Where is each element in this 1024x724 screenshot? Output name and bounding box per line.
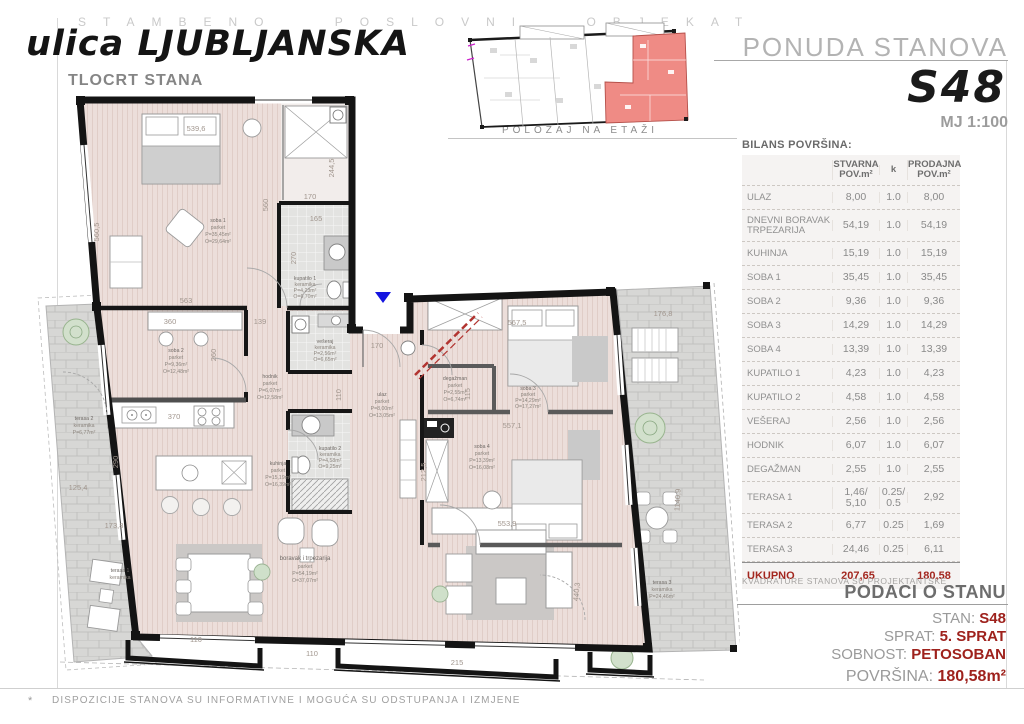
offer-title: PONUDA STANOVA [743, 32, 1008, 63]
hall-closet [400, 420, 416, 498]
svg-text:125,4: 125,4 [69, 483, 88, 492]
stool [162, 497, 179, 514]
svg-text:kuhinja: kuhinja [270, 461, 287, 467]
room-label-veseraj: vešeraj keramika P=2,56m² O=6,65m² [313, 339, 336, 363]
table-row: SOBA 3 14,29 1.0 14,29 [742, 314, 960, 338]
svg-text:539,6: 539,6 [187, 124, 206, 133]
svg-text:parket: parket [211, 225, 226, 231]
table-row: TERASA 3 24,46 0.25 6,11 [742, 538, 960, 562]
svg-text:P=54,19m²: P=54,19m² [292, 571, 318, 577]
svg-text:O=17,27m²: O=17,27m² [515, 404, 541, 410]
svg-text:P=13,39m²: P=13,39m² [469, 458, 495, 464]
room-label-kupatilo2: kupatilo 2 keramika P=4,58m² O=9,25m² [318, 446, 341, 470]
chair [636, 492, 650, 505]
toilet-icon [327, 281, 341, 299]
stool [193, 499, 210, 516]
svg-text:terasa 2: terasa 2 [75, 416, 94, 422]
svg-text:parket: parket [448, 383, 463, 389]
svg-text:terasa 3: terasa 3 [653, 580, 672, 586]
pillow [146, 117, 178, 135]
svg-text:P=8,00m²: P=8,00m² [371, 406, 394, 412]
chair [248, 602, 263, 615]
round-table [646, 507, 668, 529]
table-row: TERASA 2 6,77 0.25 1,69 [742, 514, 960, 538]
armchair [446, 586, 472, 614]
svg-text:parket: parket [298, 564, 313, 570]
svg-text:terasa 1: terasa 1 [111, 568, 130, 574]
chair [194, 332, 208, 346]
svg-text:110: 110 [334, 389, 343, 401]
svg-text:boravak i trpezarija: boravak i trpezarija [280, 556, 331, 562]
table-row: HODNIK 6,07 1.0 6,07 [742, 434, 960, 458]
stool [224, 499, 241, 516]
table-row: KUPATILO 1 4,23 1.0 4,23 [742, 362, 960, 386]
svg-text:212,5: 212,5 [419, 463, 428, 482]
room-label-terasa3: terasa 3 keramika P=24,46m² [649, 580, 675, 600]
chair [663, 530, 677, 543]
svg-text:soba 4: soba 4 [474, 444, 490, 450]
table-header-row: STVARNA POV.m² k PRODAJNA POV.m² [742, 155, 960, 186]
unit-info-title: PODACI O STANU [844, 582, 1006, 603]
pillow [546, 310, 574, 326]
svg-text:keramika: keramika [109, 575, 130, 581]
table-row: SOBA 2 9,36 1.0 9,36 [742, 290, 960, 314]
tree-icon [635, 413, 665, 443]
col-stvarna: STVARNA POV.m² [832, 160, 879, 180]
table-row: DNEVNI BORAVAK TRPEZARIJA 54,19 1.0 54,1… [742, 210, 960, 242]
side-table [99, 589, 114, 604]
table-row: SOBA 4 13,39 1.0 13,39 [742, 338, 960, 362]
footnote-mark: * [28, 695, 32, 707]
svg-text:O=29,64m²: O=29,64m² [205, 239, 231, 245]
unit-field-povrsina: POVRŠINA: 180,58m² [846, 668, 1006, 686]
svg-text:260: 260 [209, 349, 218, 362]
svg-text:360: 360 [164, 317, 177, 326]
svg-text:keramika: keramika [651, 587, 672, 593]
svg-text:557,1: 557,1 [503, 421, 522, 430]
chair [483, 491, 501, 509]
lounge-chair [312, 520, 338, 546]
chair [176, 558, 191, 571]
svg-text:139: 139 [254, 317, 267, 326]
svg-text:165: 165 [310, 214, 323, 223]
svg-text:soba 2: soba 2 [168, 348, 184, 354]
table-row: KUHINJA 15,19 1.0 15,19 [742, 242, 960, 266]
table-row: DEGAŽMAN 2,55 1.0 2,55 [742, 458, 960, 482]
lounge-chair [87, 605, 120, 631]
table-row: KUPATILO 2 4,58 1.0 4,58 [742, 386, 960, 410]
washer-icon [292, 316, 309, 333]
floor-plan: soba 1 parket P=35,45m² O=29,64m² kupati… [0, 0, 740, 724]
ottoman [496, 578, 526, 604]
svg-text:soba 1: soba 1 [210, 218, 226, 224]
svg-text:parket: parket [375, 399, 390, 405]
svg-text:1140,9: 1140,9 [672, 488, 682, 511]
svg-text:567,5: 567,5 [508, 318, 527, 327]
svg-text:215: 215 [451, 658, 464, 667]
unit-info-rule [737, 604, 1008, 605]
svg-text:115: 115 [463, 388, 472, 400]
room-label-terasa2: terasa 2 keramika P=6,77m² [73, 416, 96, 436]
svg-text:110: 110 [190, 635, 202, 644]
svg-text:560,5: 560,5 [92, 223, 101, 242]
desk [148, 312, 242, 330]
col-prodajna: PRODAJNA POV.m² [907, 160, 960, 180]
svg-text:parket: parket [475, 451, 490, 457]
svg-text:O=13,05m²: O=13,05m² [369, 413, 395, 419]
svg-text:degažman: degažman [443, 376, 467, 382]
shower [292, 479, 348, 510]
svg-text:176,8: 176,8 [654, 309, 673, 318]
svg-text:110: 110 [306, 649, 318, 658]
svg-text:P=6,07m²: P=6,07m² [259, 388, 282, 394]
svg-text:parket: parket [263, 381, 278, 387]
svg-text:O=16,39m²: O=16,39m² [265, 482, 291, 488]
washer-icon [330, 107, 346, 123]
room-label-kupatilo1: kupatilo 1 keramika P=4,23m² O=6,70m² [293, 276, 316, 300]
room-label-terasa1: terasa 1 keramika [109, 568, 130, 581]
chair [159, 332, 173, 346]
table-row: ULAZ 8,00 1.0 8,00 [742, 186, 960, 210]
rug [572, 336, 608, 382]
scale-label: MJ 1:100 [940, 114, 1008, 132]
plant-icon [432, 586, 448, 602]
area-table-title: BILANS POVRŠINA: [742, 139, 852, 151]
offer-sheet: STAMBENO POSLOVNI OBJEKAT ulica LJUBLJAN… [0, 0, 1024, 724]
chair [176, 580, 191, 593]
sofa [546, 552, 572, 608]
table-row: TERASA 1 1,46/ 5,10 0.25/ 0.5 2,92 [742, 482, 960, 514]
svg-text:370: 370 [168, 412, 181, 421]
position-diagram [467, 23, 688, 129]
svg-text:O=6,65m²: O=6,65m² [313, 357, 336, 363]
svg-text:270: 270 [289, 252, 298, 265]
svg-text:P=35,45m²: P=35,45m² [205, 232, 231, 238]
svg-text:170: 170 [371, 341, 384, 350]
unit-field-stan: STAN: S48 [932, 610, 1006, 627]
svg-text:parket: parket [169, 355, 184, 361]
chair [248, 580, 263, 593]
footnote: DISPOZICIJE STANOVA SU INFORMATIVNE I MO… [52, 695, 521, 706]
svg-text:553,9: 553,9 [498, 519, 517, 528]
armchair [446, 554, 472, 582]
svg-text:440,3: 440,3 [571, 582, 582, 601]
svg-text:563: 563 [180, 296, 193, 305]
sofa [476, 530, 546, 554]
svg-text:O=9,25m²: O=9,25m² [318, 464, 341, 470]
sun-lounger [632, 328, 678, 352]
sink-icon [332, 316, 341, 325]
table-row: VEŠERAJ 2,56 1.0 2,56 [742, 410, 960, 434]
unit-field-sprat: SPRAT: 5. SPRAT [884, 628, 1006, 645]
dining-table [188, 554, 250, 612]
offer-rule [714, 60, 1008, 61]
svg-text:244,5: 244,5 [327, 159, 336, 178]
svg-text:290: 290 [111, 456, 120, 469]
sink-icon [302, 416, 320, 434]
chair [176, 602, 191, 615]
svg-text:O=16,08m²: O=16,08m² [469, 465, 495, 471]
svg-text:ulaz: ulaz [377, 392, 387, 398]
tree-icon [63, 319, 89, 345]
svg-text:P=9,36m²: P=9,36m² [165, 362, 188, 368]
area-table: STVARNA POV.m² k PRODAJNA POV.m² ULAZ 8,… [742, 155, 960, 589]
unit-field-sobnost: SOBNOST: PETOSOBAN [831, 646, 1006, 663]
svg-text:170: 170 [304, 192, 317, 201]
sink-icon [329, 244, 345, 260]
svg-text:P=24,46m²: P=24,46m² [649, 594, 675, 600]
svg-text:O=12,48m²: O=12,48m² [163, 369, 189, 375]
svg-text:560: 560 [261, 199, 270, 212]
svg-text:O=6,70m²: O=6,70m² [293, 294, 316, 300]
sink-icon [401, 341, 415, 355]
svg-text:O=12,58m²: O=12,58m² [257, 395, 283, 401]
plant-icon [254, 564, 270, 580]
entrance-marker-icon [375, 292, 391, 303]
svg-text:keramika: keramika [73, 423, 94, 429]
col-k: k [879, 165, 907, 175]
unit-code: S48 [907, 62, 1006, 113]
bed [142, 146, 220, 184]
page-right-border [1006, 60, 1007, 688]
svg-text:P=15,19m²: P=15,19m² [265, 475, 291, 481]
svg-text:O=37,07m²: O=37,07m² [292, 578, 318, 584]
pillow [549, 524, 577, 538]
table-row: SOBA 1 35,45 1.0 35,45 [742, 266, 960, 290]
svg-text:hodnik: hodnik [262, 374, 278, 380]
lounge-chair [278, 518, 304, 544]
svg-text:parket: parket [271, 468, 286, 474]
svg-text:173,8: 173,8 [105, 521, 124, 530]
svg-text:P=6,77m²: P=6,77m² [73, 430, 96, 436]
sun-lounger [632, 358, 678, 382]
